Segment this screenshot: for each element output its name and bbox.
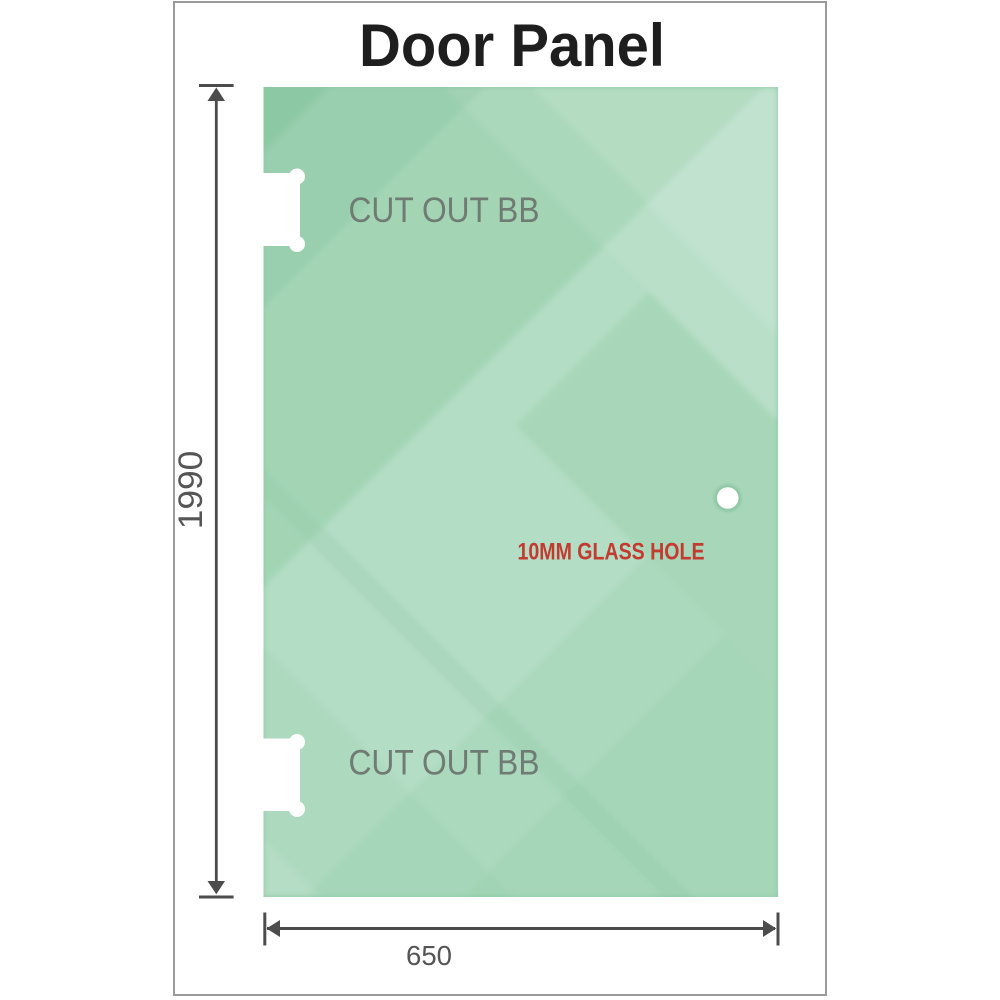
svg-text:CUT OUT BB: CUT OUT BB — [349, 191, 540, 230]
svg-text:10MM GLASS HOLE: 10MM GLASS HOLE — [518, 539, 705, 566]
svg-text:650: 650 — [406, 940, 452, 971]
svg-text:Door Panel: Door Panel — [359, 12, 665, 79]
svg-text:1990: 1990 — [172, 451, 210, 530]
svg-text:CUT OUT BB: CUT OUT BB — [349, 744, 540, 783]
